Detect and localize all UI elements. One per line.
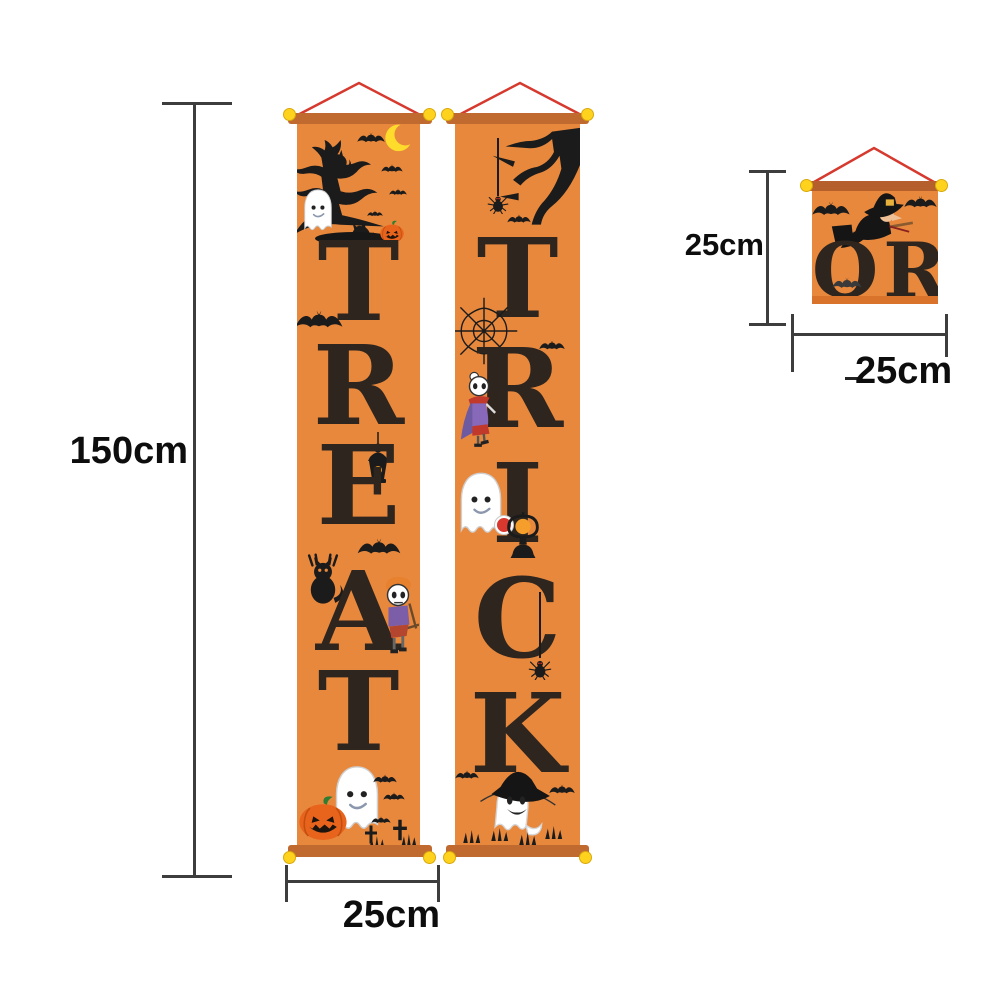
banner-letter: E <box>297 431 420 541</box>
grass-tuft-icon <box>489 828 513 841</box>
bat-icon <box>812 201 850 219</box>
dimension-tick <box>285 865 288 902</box>
banner-letter: O <box>812 226 883 304</box>
bat-icon <box>381 164 403 174</box>
jack-o-lantern-icon <box>297 794 349 842</box>
dimension-tick <box>162 102 232 105</box>
width-label: 25cm <box>330 896 440 934</box>
dimension-line-vertical <box>193 104 196 878</box>
spider-thread <box>539 592 541 658</box>
grass-tuft-icon <box>399 834 420 845</box>
bat-icon <box>832 277 862 291</box>
grass-tuft-icon <box>367 836 389 845</box>
skeleton-boy-icon <box>377 574 419 658</box>
sign-width-label: 25cm <box>855 352 950 390</box>
dimension-tick <box>749 170 786 173</box>
bat-icon <box>539 340 565 352</box>
product-photo: 150cm 25cm T <box>0 0 1000 1000</box>
grass-tuft-icon <box>543 826 567 839</box>
bottom-rod <box>288 845 432 857</box>
banner-letter: C <box>455 564 580 674</box>
dimension-line-vertical <box>766 172 769 326</box>
sign-height-label: 25cm <box>676 229 764 260</box>
banner-letter: R <box>883 226 938 304</box>
bat-icon <box>357 132 385 145</box>
or-sign-cloth: OR <box>812 191 938 304</box>
rod-cap <box>283 108 296 121</box>
bat-icon <box>389 188 407 197</box>
dimension-line-horizontal <box>287 880 439 883</box>
black-cat-icon <box>327 146 351 168</box>
top-rod <box>805 181 943 191</box>
bat-icon <box>455 770 479 781</box>
bottom-hem <box>812 296 938 304</box>
top-rod <box>446 113 589 124</box>
rod-cap <box>423 851 436 864</box>
rod-cap <box>283 851 296 864</box>
bottom-rod <box>446 845 589 857</box>
crescent-moon-icon <box>383 124 411 152</box>
height-label: 150cm <box>50 432 188 470</box>
grass-tuft-icon <box>461 830 485 843</box>
trick-banner-cloth: T R I C K <box>455 124 580 845</box>
top-rod <box>288 113 432 124</box>
dimension-tick <box>162 875 232 878</box>
hanging-spider-icon <box>486 192 510 214</box>
dimension-tick <box>749 323 786 326</box>
dimension-tick <box>791 314 794 372</box>
rod-cap <box>581 108 594 121</box>
bat-icon <box>549 784 575 796</box>
bat-icon <box>383 792 405 802</box>
or-word: OR <box>812 233 938 304</box>
rod-cap <box>423 108 436 121</box>
rod-cap <box>443 851 456 864</box>
rod-cap <box>579 851 592 864</box>
bat-icon <box>904 195 937 211</box>
grass-tuft-icon <box>517 832 541 845</box>
spider-thread <box>497 138 499 196</box>
bat-icon <box>373 774 397 785</box>
dimension-line-horizontal <box>792 333 948 336</box>
rod-cap <box>441 108 454 121</box>
banner-letter: T <box>297 657 420 767</box>
treat-banner-cloth: T R E A T <box>297 124 420 845</box>
skeleton-witch-icon <box>459 370 499 450</box>
